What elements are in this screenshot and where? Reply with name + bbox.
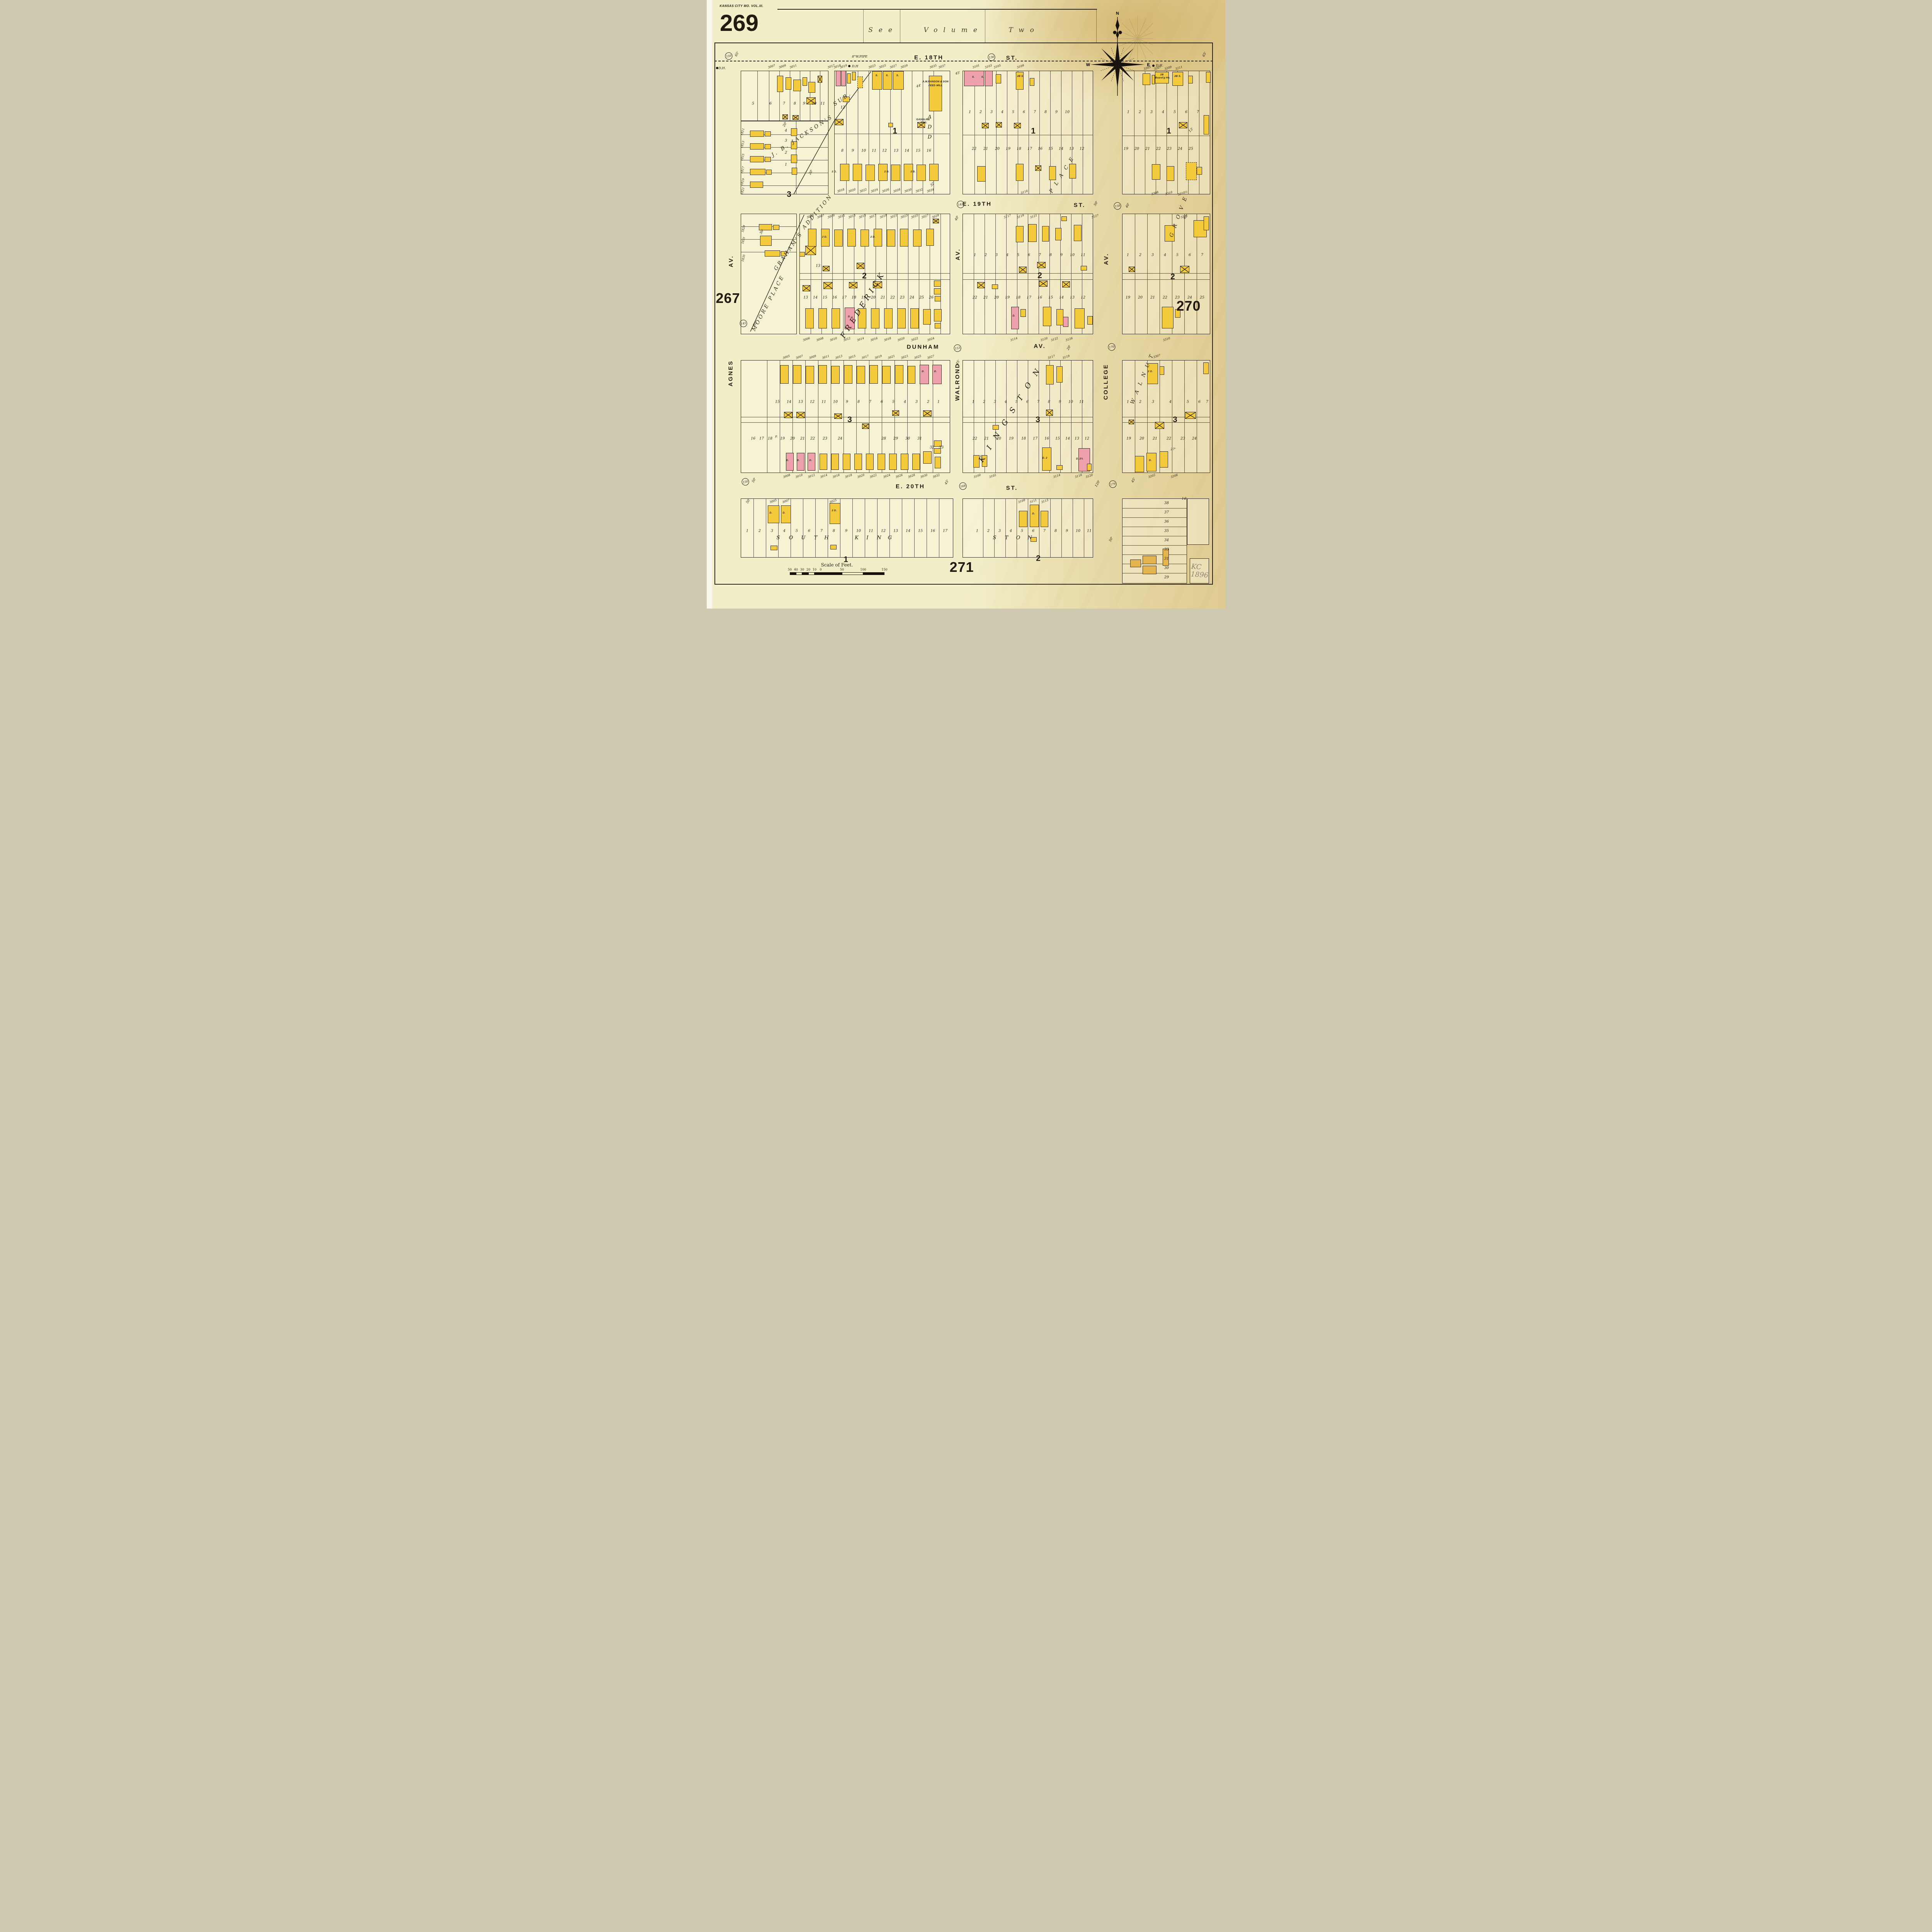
lot-line — [766, 499, 766, 557]
banner-see-volume-two: See Volume Two — [868, 26, 1040, 34]
lot-line — [1177, 71, 1178, 194]
frame-building — [1037, 262, 1046, 268]
lot-number: 15 — [1048, 147, 1053, 151]
lot-line — [865, 499, 865, 557]
circled-distance: 170 — [1107, 343, 1116, 351]
frame-building — [1204, 216, 1209, 230]
frame-building — [1135, 456, 1144, 472]
lot-number: 15 — [1048, 296, 1053, 299]
street-label: WALROND — [955, 363, 961, 401]
house-number: 3105 — [993, 64, 1001, 69]
house-number: 3027 — [927, 354, 935, 359]
lot-number: 5 — [1187, 400, 1189, 404]
block-number: 2 — [1036, 554, 1041, 563]
frame-building — [933, 219, 939, 223]
frame-building — [765, 250, 780, 257]
lot-number: 35 — [1164, 529, 1169, 533]
frame-building — [834, 413, 842, 419]
frame-building — [1143, 556, 1156, 564]
lot-number: 7 — [1206, 400, 1208, 404]
house-number: 3017 — [861, 354, 869, 359]
circled-distance: 150 — [741, 478, 750, 486]
adjacent-sheet-number: 267 — [716, 291, 740, 305]
brick-building — [985, 71, 993, 86]
brick-building — [1011, 307, 1019, 329]
lot-number: 16 — [751, 437, 755, 440]
lot-number: 6 — [1026, 400, 1029, 404]
lot-number: 4 — [1005, 400, 1007, 404]
house-number: 3008 — [783, 473, 791, 478]
lot-number: 7 — [1043, 529, 1046, 533]
lot-number: 17 — [1027, 296, 1031, 299]
frame-building — [1167, 166, 1174, 181]
lot-number: 21 — [800, 437, 805, 440]
lot-number: 2 — [980, 110, 982, 114]
frame-building — [854, 454, 862, 470]
dimension-label: 50' — [752, 477, 757, 483]
house-number: 3007 — [796, 354, 803, 359]
lot-number: 3 — [1152, 400, 1154, 404]
lot-number: 18 — [1017, 147, 1021, 151]
building-label: D. — [922, 371, 925, 373]
lot-number: 8 — [841, 149, 844, 153]
frame-building — [808, 82, 815, 93]
lot-line — [753, 499, 754, 557]
lot-number: 2 — [985, 253, 987, 257]
lot-number: 5 — [1017, 253, 1019, 257]
building-label: D. — [786, 459, 789, 462]
lot-line — [1006, 214, 1007, 334]
lot-number: 1 — [972, 400, 975, 404]
lot-number: 3 — [915, 400, 918, 404]
lot-number: 22 — [1167, 437, 1171, 440]
dimension-label: 40' — [954, 215, 960, 221]
lot-number: 24 — [1192, 437, 1197, 440]
frame-building — [977, 282, 985, 288]
lot-number: 2 — [983, 400, 985, 404]
frame-building — [1180, 266, 1189, 273]
frame-building — [901, 454, 908, 470]
lot-number: 5 — [1012, 110, 1014, 114]
frame-building — [1146, 453, 1156, 471]
lot-number: 3 — [1151, 253, 1154, 257]
dimension-label: 40' — [1125, 202, 1131, 209]
building-label: D. — [934, 371, 937, 373]
frame-building — [1179, 122, 1187, 128]
frame-building — [1160, 451, 1168, 468]
frame-building — [1028, 224, 1037, 242]
building-label: 2B S. — [1017, 75, 1024, 78]
house-number: 3011 — [822, 354, 830, 359]
lot-number: 33 — [1164, 548, 1169, 551]
lot-line — [1028, 499, 1028, 557]
lot-number: 11 — [1079, 400, 1084, 404]
house-number: 3122 — [1051, 337, 1058, 342]
alley-line — [963, 273, 1093, 274]
house-number: 3101 — [972, 64, 980, 69]
house-number: 3310 — [1163, 337, 1170, 342]
alley-line — [1122, 554, 1187, 555]
frame-building — [1129, 267, 1135, 272]
frame-building — [818, 365, 827, 384]
scale-tick-label: 150 — [881, 568, 887, 571]
lot-line — [1184, 361, 1185, 473]
lot-number: 8 — [833, 529, 835, 533]
house-number: 3207 — [1154, 65, 1162, 70]
lot-line — [1071, 214, 1071, 334]
lot-number: 12 — [1081, 296, 1085, 299]
lot-line — [1184, 214, 1185, 334]
lot-number: 1 — [974, 253, 976, 257]
scale-bar-segment — [842, 572, 863, 575]
lot-number: 11 — [872, 149, 876, 153]
compass-rose: N W E — [1083, 9, 1153, 97]
lot-number: 2 — [987, 529, 990, 533]
frame-building — [765, 144, 771, 149]
frame-building — [1206, 72, 1211, 83]
lot-number: 11 — [1087, 529, 1092, 533]
frame-building — [1130, 560, 1141, 567]
frame-building — [861, 230, 869, 247]
lot-number: 26 — [929, 296, 934, 299]
lot-number: 20 — [1138, 296, 1143, 299]
lot-number: 6 — [1023, 110, 1025, 114]
lot-number: 19 — [1124, 147, 1128, 151]
house-number: 3120 — [1040, 337, 1048, 342]
lot-line — [1050, 499, 1051, 557]
lot-number: 16 — [1044, 437, 1049, 440]
lot-number: 13 — [1075, 437, 1079, 440]
lot-line — [1197, 361, 1197, 473]
lot-number: 9 — [1060, 253, 1063, 257]
lot-number: 20 — [997, 437, 1001, 440]
house-number: 3011 — [789, 64, 797, 69]
lot-number: 20 — [1134, 147, 1139, 151]
subdivision-letter: I — [866, 536, 868, 541]
house-number: 3020 — [857, 473, 865, 478]
dimension-label: 45' — [944, 479, 950, 485]
frame-building — [996, 74, 1001, 83]
lot-number: 7 — [1201, 253, 1203, 257]
building-label: A.M.RANSON & SON — [922, 81, 948, 83]
dimension-label: D.H — [852, 65, 859, 68]
house-number: 3211 — [1175, 65, 1183, 70]
frame-building — [1016, 226, 1024, 242]
alley-line — [835, 134, 950, 134]
ghost-compass — [1115, 16, 1153, 61]
alley-line — [1122, 273, 1210, 274]
frame-building — [832, 308, 840, 328]
lot-number: 3 — [995, 253, 998, 257]
subdivision-letter: U — [801, 536, 806, 541]
lot-number: 14 — [1059, 296, 1064, 299]
building-label: S. — [972, 76, 975, 79]
lot-line — [1039, 71, 1040, 194]
frame-right — [1212, 43, 1213, 585]
lot-line — [995, 214, 996, 334]
lot-number: 1 — [785, 163, 787, 167]
street-label: DUNHAM — [907, 344, 940, 350]
lot-line — [995, 361, 996, 473]
subdivision-letter: G — [888, 536, 892, 541]
double-hydrant-dot — [848, 65, 850, 67]
frame-building — [1172, 72, 1183, 86]
house-number: 3035 — [929, 64, 937, 69]
lot-number: 13 — [893, 529, 898, 533]
alley-line — [1122, 136, 1210, 136]
lot-number: 6 — [1185, 110, 1187, 114]
lot-number: 6 — [1032, 529, 1034, 533]
lot-line — [1172, 361, 1172, 473]
lot-number: 9 — [846, 400, 848, 404]
frame-building — [1074, 225, 1082, 241]
lot-line — [1005, 499, 1006, 557]
lot-number: 21 — [1150, 296, 1155, 299]
house-number: 3010 — [830, 337, 837, 342]
frame-building — [844, 365, 852, 384]
frame-building — [869, 365, 878, 384]
frame-building — [912, 454, 920, 470]
frame-building — [803, 285, 810, 291]
building-label: D. — [797, 459, 800, 462]
header-tick — [863, 9, 864, 43]
building-label: 2B S. — [1174, 75, 1181, 78]
lot-line — [985, 214, 985, 334]
scale-bar-segment — [790, 572, 796, 575]
building-label: D. — [1149, 459, 1152, 462]
house-number: 3209 — [1164, 65, 1172, 70]
frame-building — [818, 308, 827, 328]
lot-number: 16 — [927, 149, 931, 153]
lot-number: 23 — [900, 296, 905, 299]
frame-building — [853, 164, 862, 181]
lot-number: 12 — [881, 529, 886, 533]
dimension-label: 50' — [1109, 536, 1114, 543]
frame-building — [895, 365, 903, 384]
lot-line — [877, 499, 878, 557]
circled-distance: 153 — [953, 344, 962, 352]
frame-building — [992, 284, 998, 289]
lot-number: 15 — [775, 400, 780, 404]
block-number: 2 — [1037, 272, 1042, 280]
subdivision-letter: O — [1016, 536, 1020, 541]
frame-building — [793, 115, 799, 120]
lot-number: 19 — [1005, 296, 1010, 299]
alley-line — [963, 135, 1093, 135]
lot-number: 4 — [1169, 400, 1172, 404]
frame-building — [1035, 165, 1041, 171]
frame-building — [913, 230, 922, 247]
subdivision-letter: N — [877, 536, 881, 541]
frame-building — [1155, 422, 1164, 429]
lot-line — [1029, 71, 1029, 194]
frame-building — [796, 412, 805, 418]
lot-number: 14 — [1059, 147, 1063, 151]
frame-building — [786, 77, 791, 90]
header-tick — [985, 9, 985, 43]
lot-line — [767, 361, 767, 473]
frame-building — [847, 73, 851, 83]
house-number: 3100 — [973, 473, 981, 478]
house-number: 3030 — [920, 473, 928, 478]
scale-tick-label: 20 — [806, 568, 810, 571]
lot-number: 14 — [813, 296, 818, 299]
lot-number: 2 — [785, 151, 787, 155]
scale-bar-segment — [815, 572, 821, 575]
lot-number: 10 — [1076, 529, 1080, 533]
lot-number: 3 — [998, 529, 1001, 533]
scale-bar-segment — [802, 572, 808, 575]
lot-number: 19 — [780, 437, 785, 440]
lot-number: 11 — [821, 400, 826, 404]
frame-building — [791, 155, 797, 163]
lot-number: 18 — [1021, 437, 1026, 440]
frame-building — [900, 229, 908, 247]
frame-building — [750, 143, 764, 150]
lot-number: 6 — [1028, 253, 1030, 257]
house-number: 3015 — [848, 354, 856, 359]
frame-building — [765, 131, 771, 136]
frame-building — [935, 457, 941, 468]
house-number: 3206 — [1170, 473, 1178, 478]
lot-number: 6 — [1198, 400, 1201, 404]
frame-building — [857, 77, 863, 88]
lot-number: 9 — [1055, 110, 1058, 114]
lot-number: 15 — [916, 149, 920, 153]
lot-line — [1073, 499, 1073, 557]
house-number: 3024 — [883, 473, 891, 478]
lot-number: 4 — [785, 129, 787, 133]
double-hydrant-dot — [716, 67, 718, 69]
house-number: 3117 — [1048, 354, 1055, 359]
building-label: ENG. — [921, 122, 927, 124]
frame-building — [1087, 464, 1092, 471]
lot-number: 23 — [1175, 296, 1180, 299]
frame-building — [1188, 76, 1193, 83]
lot-number: 2 — [759, 529, 761, 533]
lot-line — [810, 71, 810, 121]
lot-number: 14 — [906, 529, 910, 533]
frame-building — [934, 281, 941, 287]
alley-line — [1122, 422, 1210, 423]
lot-number: 22 — [1156, 147, 1161, 151]
lot-number: 36 — [1164, 520, 1169, 524]
alley-line — [741, 422, 950, 423]
lot-line — [1135, 214, 1135, 334]
lot-number: 15 — [918, 529, 923, 533]
frame-left — [714, 43, 715, 585]
frame-building — [823, 266, 830, 271]
house-number: 3028 — [908, 473, 915, 478]
city-block — [1187, 498, 1209, 545]
house-number: 3009 — [809, 354, 816, 359]
building-label: 2 D. — [832, 171, 837, 173]
lot-number: 2 — [927, 400, 929, 404]
dimension-label: 65' — [1202, 51, 1207, 58]
lot-number: 13 — [803, 296, 808, 299]
block-number: 1 — [893, 127, 897, 135]
adjacent-sheet-number: 270 — [1176, 299, 1201, 313]
frame-building — [805, 246, 816, 255]
alley-line — [1122, 279, 1210, 280]
building-label: 2B — [1160, 74, 1164, 77]
lot-number: 22 — [973, 437, 977, 440]
frame-building — [808, 229, 816, 247]
dimension-label: 50' — [1094, 201, 1099, 207]
lot-number: 30 — [1164, 566, 1169, 570]
subdivision-letter: T — [1005, 536, 1009, 541]
lot-number: 1 — [969, 110, 971, 114]
catalog-note: KANSAS CITY MO. VOL.III. — [719, 5, 763, 8]
scale-tick-label: 30 — [800, 568, 804, 571]
house-number: 3022 — [911, 337, 918, 342]
frame-building — [1030, 78, 1034, 86]
dimension-label: D.H. — [718, 67, 726, 70]
street-label: E. 18TH — [914, 55, 944, 61]
lot-number: 19 — [1126, 296, 1130, 299]
lot-line — [852, 499, 853, 557]
lot-number: 20 — [871, 296, 876, 299]
house-number: 3021 — [888, 354, 895, 359]
lot-number: 5 — [1015, 400, 1018, 404]
lot-number: 21 — [984, 437, 989, 440]
lot-number: 5 — [1021, 529, 1023, 533]
lot-number: 38 — [1164, 501, 1169, 505]
frame-building — [889, 454, 897, 470]
alley-line — [1122, 508, 1187, 509]
lot-line — [1083, 71, 1083, 194]
house-number: 3012 — [808, 473, 815, 478]
lot-number: 19 — [1006, 147, 1010, 151]
lot-number: 17 — [943, 529, 947, 533]
frame-building — [1075, 308, 1085, 328]
lot-number: 14 — [905, 149, 909, 153]
frame-building — [934, 309, 942, 321]
frame-building — [917, 165, 926, 181]
subdivision-letter: N — [1027, 536, 1032, 541]
house-number: 3018 — [845, 473, 852, 478]
house-number: 3103 — [985, 64, 992, 69]
lot-number: 8 — [1049, 253, 1052, 257]
lot-number: 6 — [769, 102, 772, 105]
lot-number: 8 — [857, 400, 860, 404]
scale-tick-label: 40 — [794, 568, 798, 571]
frame-building — [982, 123, 989, 128]
building-label: D. — [1013, 315, 1015, 318]
lot-number: 3 — [990, 110, 993, 114]
lot-line — [1007, 71, 1007, 194]
lot-line — [1061, 499, 1062, 557]
compass-north-label: N — [1116, 11, 1119, 16]
city-block — [963, 498, 1093, 558]
frame-building — [750, 156, 764, 162]
lot-number: 9 — [1059, 400, 1061, 404]
scale-bar-segment — [863, 572, 884, 575]
scale-bar-title: Scale of Feet. — [821, 562, 853, 568]
lot-number: 10 — [812, 102, 816, 105]
lot-number: 19 — [1009, 437, 1014, 440]
lot-number: 17 — [842, 296, 847, 299]
frame-building — [910, 308, 919, 328]
frame-building — [1186, 162, 1197, 180]
street-label: E. 19TH — [963, 201, 992, 207]
lot-number: 7 — [869, 400, 871, 404]
lot-line — [927, 499, 927, 557]
building-label: Board'g Ho. — [1155, 77, 1170, 80]
lot-number: 1 — [1127, 400, 1129, 404]
frame-building — [1019, 267, 1027, 273]
frame-building — [770, 546, 777, 550]
